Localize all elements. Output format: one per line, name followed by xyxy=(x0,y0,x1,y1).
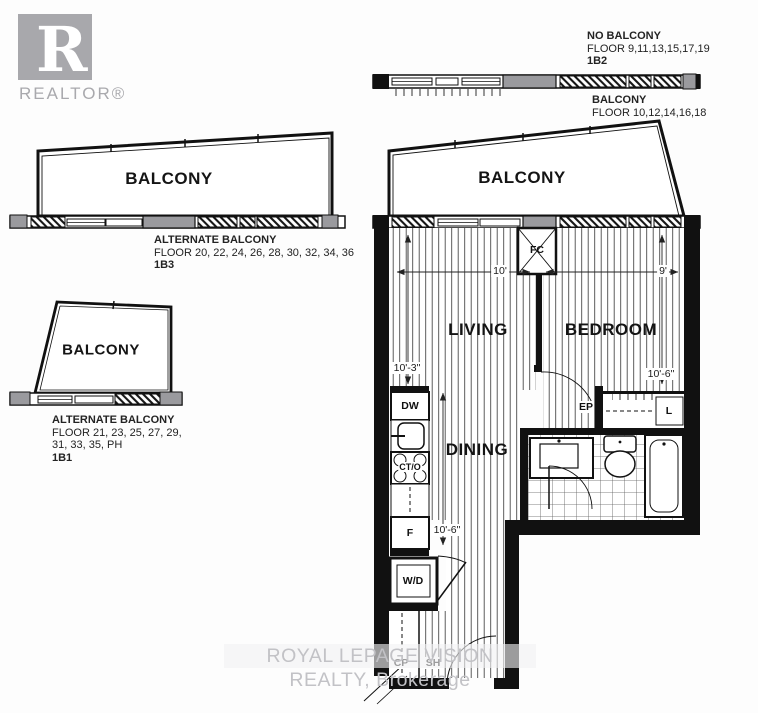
dishwasher-label: DW xyxy=(400,400,420,412)
caption-1b2-floors: FLOOR 9,11,13,15,17,19 xyxy=(587,43,710,56)
caption-1b3-code: 1B3 xyxy=(154,259,354,272)
floor-plan-page: R xyxy=(0,0,758,713)
caption-1b1-floors1: FLOOR 21, 23, 25, 27, 29, xyxy=(52,427,182,440)
wall-strip-1b2 xyxy=(373,74,700,96)
caption-1b1-title: ALTERNATE BALCONY xyxy=(52,414,182,427)
dim-living-depth: 10'-3" xyxy=(392,362,423,374)
fridge-label: F xyxy=(406,527,414,539)
caption-1b2: NO BALCONY FLOOR 9,11,13,15,17,19 1B2 xyxy=(587,30,710,68)
bathroom xyxy=(528,435,684,520)
caption-1b3-floors: FLOOR 20, 22, 24, 26, 28, 30, 32, 34, 36 xyxy=(154,247,354,260)
caption-balcony-note: BALCONY FLOOR 10,12,14,16,18 xyxy=(592,94,706,119)
living-label: LIVING xyxy=(448,320,508,340)
balcony-1b3-label: BALCONY xyxy=(125,169,213,189)
caption-1b1: ALTERNATE BALCONY FLOOR 21, 23, 25, 27, … xyxy=(52,414,182,464)
fan-coil-label: FC xyxy=(529,244,545,256)
realtor-logo-icon: R xyxy=(18,13,92,86)
bedroom-label: BEDROOM xyxy=(565,320,657,340)
dim-bedroom-depth: 10'-6" xyxy=(646,368,677,380)
caption-1b3: ALTERNATE BALCONY FLOOR 20, 22, 24, 26, … xyxy=(154,234,354,272)
caption-1b2-code: 1B2 xyxy=(587,55,710,68)
toilet-icon xyxy=(604,436,636,452)
dim-living-width: 10' xyxy=(491,265,509,277)
washer-dryer-label: W/D xyxy=(402,575,424,587)
dining-label: DINING xyxy=(446,440,509,460)
caption-1b1-floors2: 31, 33, 35, PH xyxy=(52,439,182,452)
caption-1b1-code: 1B1 xyxy=(52,452,182,465)
caption-1b3-title: ALTERNATE BALCONY xyxy=(154,234,354,247)
electrical-panel-label: EP xyxy=(578,401,594,413)
unit-window-wall-strip xyxy=(373,215,700,228)
balcony-1b1-label: BALCONY xyxy=(62,342,140,359)
bathtub-icon xyxy=(645,435,683,517)
dim-dining-depth: 10'-6" xyxy=(432,524,463,536)
unit-balcony-label: BALCONY xyxy=(478,168,566,188)
dim-bedroom-width: 9' xyxy=(657,265,669,277)
svg-text:R: R xyxy=(36,13,88,86)
brokerage-watermark: ROYAL LEPAGE VISION REALTY, Brokerage xyxy=(224,644,536,668)
cooktop-label: CT/O xyxy=(398,462,422,472)
realtor-wordmark: REALTOR® xyxy=(19,84,126,104)
linen-label: L xyxy=(665,405,673,417)
caption-balcony-title: BALCONY xyxy=(592,94,706,107)
caption-balcony-floors: FLOOR 10,12,14,16,18 xyxy=(592,107,706,120)
caption-1b2-title: NO BALCONY xyxy=(587,30,710,43)
